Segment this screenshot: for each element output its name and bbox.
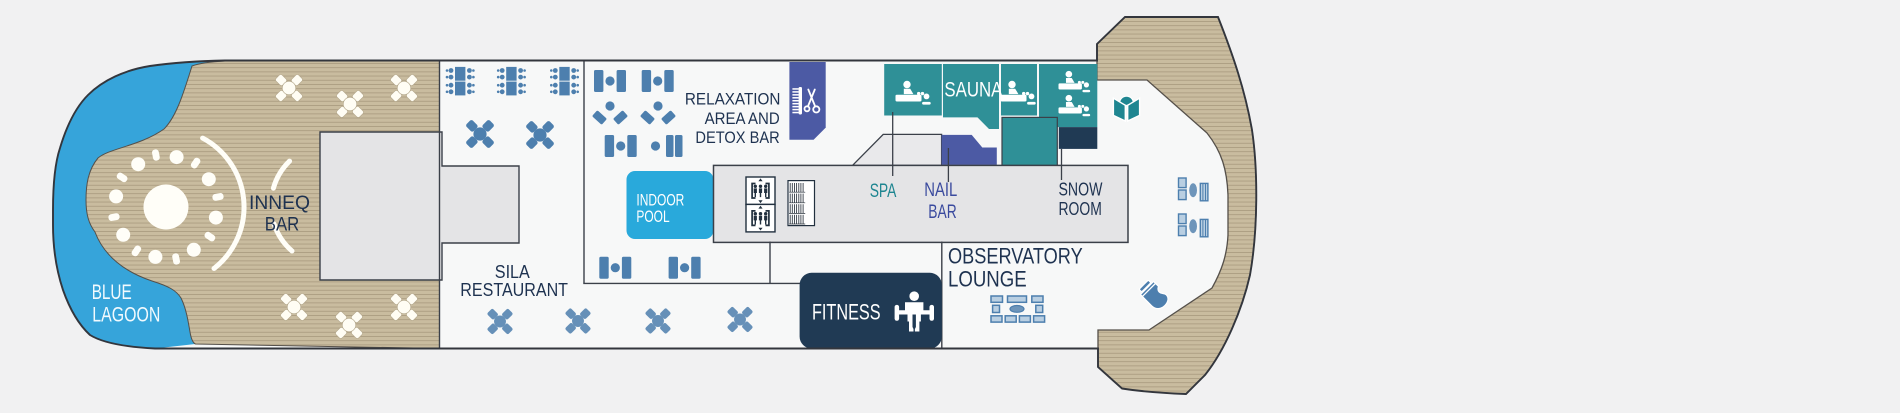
svg-text:RESTAURANT: RESTAURANT — [460, 280, 568, 300]
svg-text:SILA: SILA — [495, 262, 530, 282]
svg-text:POOL: POOL — [636, 208, 669, 226]
svg-text:BAR: BAR — [265, 213, 300, 235]
svg-text:INNEQ: INNEQ — [249, 192, 310, 214]
svg-text:BAR: BAR — [928, 202, 956, 223]
svg-text:AREA AND: AREA AND — [705, 109, 780, 128]
svg-text:SPA: SPA — [870, 181, 897, 202]
svg-text:LOUNGE: LOUNGE — [948, 267, 1027, 292]
svg-text:RELAXATION: RELAXATION — [685, 89, 781, 108]
svg-text:INDOOR: INDOOR — [636, 191, 684, 209]
svg-text:OBSERVATORY: OBSERVATORY — [948, 243, 1083, 268]
svg-text:SNOW: SNOW — [1059, 180, 1103, 200]
svg-text:BLUE: BLUE — [92, 281, 132, 304]
svg-text:DETOX BAR: DETOX BAR — [695, 128, 779, 147]
svg-text:FITNESS: FITNESS — [812, 300, 881, 325]
svg-text:NAIL: NAIL — [924, 180, 957, 201]
svg-text:LAGOON: LAGOON — [92, 304, 160, 327]
svg-text:SAUNA: SAUNA — [944, 79, 1002, 102]
svg-text:ROOM: ROOM — [1059, 199, 1102, 219]
